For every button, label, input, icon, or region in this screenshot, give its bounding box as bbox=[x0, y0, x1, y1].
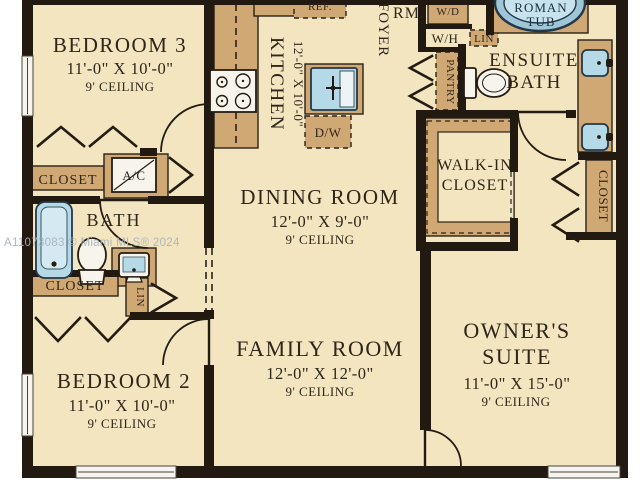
water-heater-label: W/H bbox=[432, 31, 459, 46]
walkin-label-2: CLOSET bbox=[442, 177, 508, 194]
family-ceiling: 9' CEILING bbox=[285, 384, 354, 399]
mls-watermark: A11073083 © Miami MLS® 2024 bbox=[4, 237, 180, 249]
floor-plan-canvas: BEDROOM 3 11'-0" X 10'-0" 9' CEILING KIT… bbox=[0, 0, 640, 480]
dining-size: 12'-0" X 9'-0" bbox=[271, 212, 370, 231]
ac-label: A/C bbox=[122, 168, 145, 183]
ensuite-toilet-icon bbox=[464, 68, 511, 98]
kitchen-size: 12'-0" X 10'-0" bbox=[291, 41, 306, 127]
owner-closet-label: CLOSET bbox=[596, 170, 611, 222]
vanity-sink-icon bbox=[582, 124, 613, 150]
bedroom2-closet-label: CLOSET bbox=[46, 279, 105, 294]
ensuite-label-2: BATH bbox=[506, 72, 562, 93]
floor-plan-svg: BEDROOM 3 11'-0" X 10'-0" 9' CEILING KIT… bbox=[0, 0, 640, 480]
bathroom-sink-icon bbox=[119, 253, 149, 282]
washer-dryer-label: W/D bbox=[437, 6, 460, 18]
dining-label: DINING ROOM bbox=[240, 185, 399, 209]
walkin-label-1: WALK-IN bbox=[437, 157, 512, 174]
roman-tub-label-2: TUB bbox=[527, 14, 556, 29]
foyer-label: FOYER bbox=[375, 3, 391, 57]
linen-bedroom-label: LIN bbox=[134, 287, 146, 307]
family-label: FAMILY ROOM bbox=[236, 336, 404, 361]
owners-label-2: SUITE bbox=[482, 344, 552, 369]
dining-ceiling: 9' CEILING bbox=[285, 232, 354, 247]
owners-label-1: OWNER'S bbox=[463, 318, 570, 343]
kitchen-sink-icon bbox=[311, 68, 357, 110]
refrigerator-label: REF. bbox=[308, 1, 332, 13]
linen-hall-label: LIN bbox=[474, 33, 494, 45]
bedroom2-label: BEDROOM 2 bbox=[57, 369, 191, 393]
bedroom2-ceiling: 9' CEILING bbox=[87, 416, 156, 431]
owners-size: 11'-0" X 15'-0" bbox=[464, 374, 571, 393]
owners-ceiling: 9' CEILING bbox=[481, 394, 550, 409]
rm-label: RM. bbox=[393, 5, 425, 22]
bedroom3-ceiling: 9' CEILING bbox=[85, 79, 154, 94]
bath-label: BATH bbox=[86, 210, 141, 230]
ensuite-label-1: ENSUITE bbox=[489, 50, 579, 71]
bedroom3-closet-label: CLOSET bbox=[39, 173, 98, 188]
bedroom2-size: 11'-0" X 10'-0" bbox=[69, 396, 176, 415]
roman-tub-label-1: ROMAN bbox=[514, 0, 567, 15]
pantry-label: PANTRY bbox=[444, 59, 456, 104]
bedroom3-label: BEDROOM 3 bbox=[53, 33, 187, 57]
dishwasher-label: D/W bbox=[315, 125, 342, 140]
bedroom3-size: 11'-0" X 10'-0" bbox=[67, 59, 174, 78]
family-size: 12'-0" X 12'-0" bbox=[266, 364, 374, 383]
stove-icon bbox=[210, 70, 256, 112]
vanity-sink-icon bbox=[582, 50, 613, 76]
kitchen-label: KITCHEN bbox=[266, 37, 287, 131]
